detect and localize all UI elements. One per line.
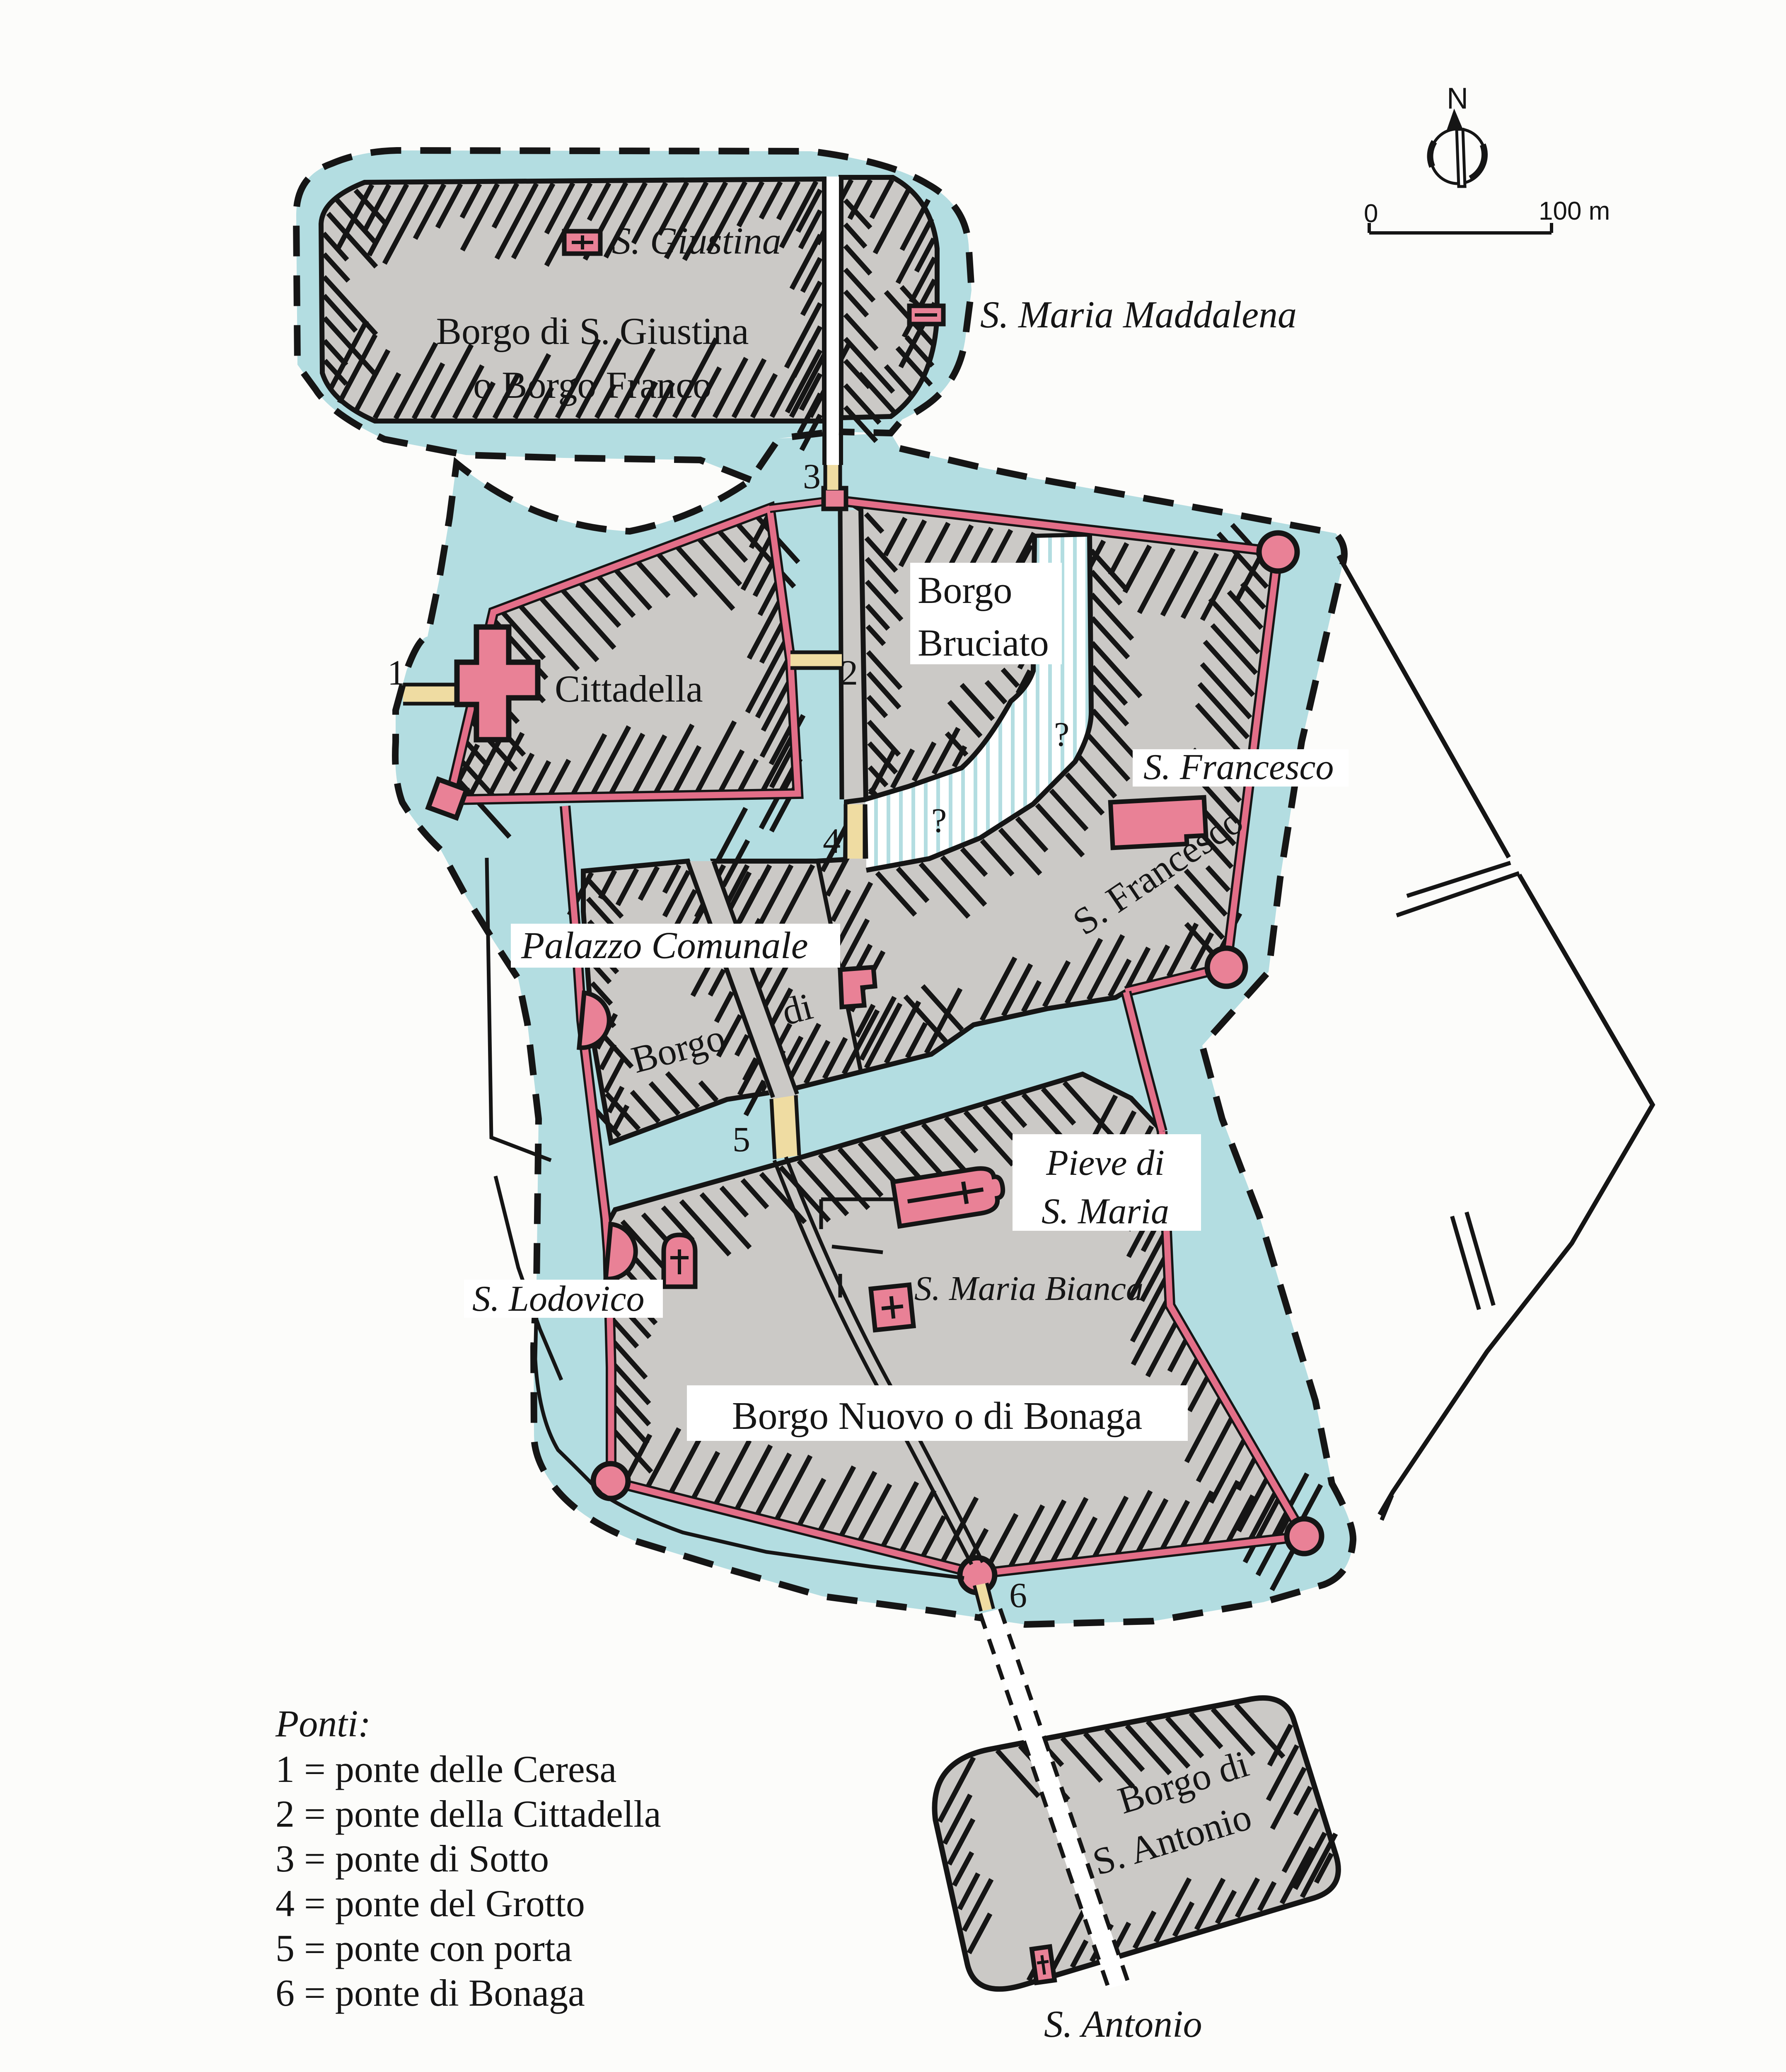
svg-text:?: ?	[931, 801, 947, 840]
svg-text:o Borgo Franco: o Borgo Franco	[473, 364, 712, 406]
svg-text:5: 5	[732, 1119, 750, 1159]
svg-text:S. Francesco: S. Francesco	[1143, 747, 1334, 787]
svg-text:Bruciato: Bruciato	[918, 622, 1049, 664]
svg-text:3 = ponte di Sotto: 3 = ponte di Sotto	[276, 1837, 549, 1880]
svg-text:Palazzo Comunale: Palazzo Comunale	[521, 924, 808, 966]
svg-text:0: 0	[1364, 199, 1378, 228]
svg-text:S. Maria Maddalena: S. Maria Maddalena	[980, 293, 1297, 336]
svg-text:Ponti:: Ponti:	[275, 1702, 371, 1745]
svg-text:S. Lodovico: S. Lodovico	[472, 1279, 645, 1319]
svg-text:100 m: 100 m	[1539, 197, 1610, 225]
svg-text:S. Maria Bianca: S. Maria Bianca	[914, 1269, 1143, 1308]
svg-text:Borgo: Borgo	[918, 569, 1012, 611]
svg-text:4 = ponte del Grotto: 4 = ponte del Grotto	[276, 1882, 585, 1924]
svg-text:2: 2	[840, 653, 858, 692]
svg-text:?: ?	[1054, 715, 1069, 754]
svg-text:1 = ponte delle Ceresa: 1 = ponte delle Ceresa	[276, 1748, 616, 1790]
svg-text:S. Giustina: S. Giustina	[612, 220, 781, 262]
svg-text:5 = ponte con porta: 5 = ponte con porta	[276, 1927, 572, 1969]
svg-text:Cittadella: Cittadella	[555, 668, 703, 710]
svg-text:6 = ponte di Bonaga: 6 = ponte di Bonaga	[276, 1972, 585, 2014]
svg-text:4: 4	[823, 821, 841, 861]
svg-text:S. Maria: S. Maria	[1042, 1191, 1169, 1232]
svg-text:Borgo di S. Giustina: Borgo di S. Giustina	[436, 310, 749, 352]
svg-text:S. Antonio: S. Antonio	[1044, 2003, 1202, 2045]
svg-text:Borgo Nuovo o di Bonaga: Borgo Nuovo o di Bonaga	[732, 1394, 1142, 1438]
svg-text:1: 1	[387, 653, 405, 692]
svg-text:6: 6	[1009, 1575, 1027, 1615]
svg-text:N: N	[1447, 82, 1468, 115]
svg-text:2 = ponte della Cittadella: 2 = ponte della Cittadella	[276, 1793, 661, 1835]
svg-text:Pieve di: Pieve di	[1046, 1143, 1165, 1183]
svg-text:3: 3	[803, 456, 821, 496]
